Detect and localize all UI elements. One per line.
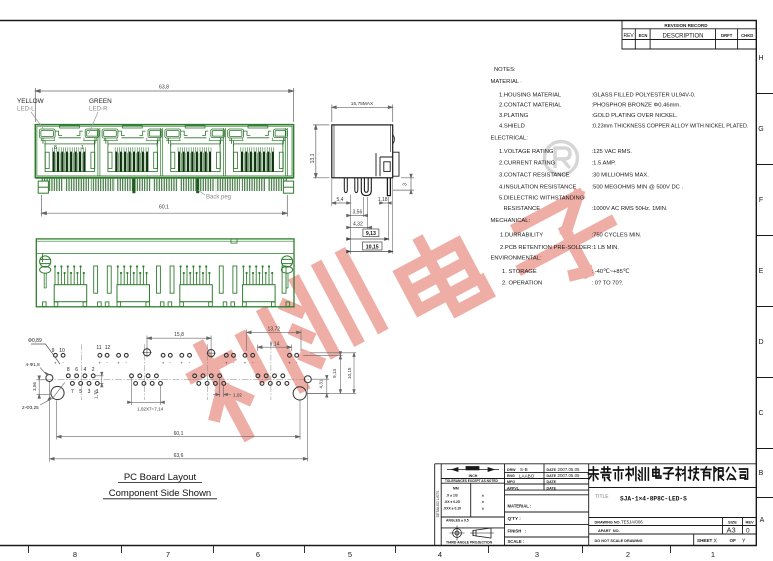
svg-text:REV: REV <box>746 519 755 524</box>
svg-text::500 MEGOHMS MIN @ 500V DC .: :500 MEGOHMS MIN @ 500V DC . <box>592 185 684 191</box>
svg-text:8: 8 <box>67 367 70 373</box>
svg-text:10: 10 <box>59 348 65 354</box>
svg-text:C: C <box>758 410 763 417</box>
svg-text:DATE: DATE <box>547 468 557 472</box>
svg-text:DETAILED LISTS: DETAILED LISTS <box>436 490 440 517</box>
svg-text:REV: REV <box>623 33 634 39</box>
svg-text::125 VAC RMS.: :125 VAC RMS. <box>592 149 633 155</box>
svg-text:G: G <box>758 126 763 133</box>
svg-text:9,14: 9,14 <box>270 342 280 348</box>
svg-text:APART NO.: APART NO. <box>598 529 620 533</box>
svg-text:OF: OF <box>730 538 737 543</box>
svg-text:PC Board Layout: PC Board Layout <box>124 472 197 483</box>
svg-text:DATE: DATE <box>547 480 557 484</box>
svg-text:1,78: 1,78 <box>94 390 99 399</box>
svg-text:5: 5 <box>348 550 352 559</box>
svg-text:Φ0,89: Φ0,89 <box>28 338 42 344</box>
svg-text:4.INSULATION RESISTANCE: 4.INSULATION RESISTANCE <box>499 185 577 191</box>
svg-text:9,13: 9,13 <box>366 231 376 237</box>
svg-text:63,6: 63,6 <box>174 453 184 459</box>
svg-text:63,8: 63,8 <box>159 85 169 91</box>
svg-text:RESISTANCE: RESISTANCE <box>504 206 541 212</box>
svg-text:1: 1 <box>711 550 715 559</box>
svg-text:8: 8 <box>54 145 57 151</box>
svg-text:1,18: 1,18 <box>378 197 388 203</box>
svg-text:F: F <box>759 197 763 204</box>
svg-text:1.HOUSING MATERIAL: 1.HOUSING MATERIAL <box>499 93 562 99</box>
svg-text:0: 0 <box>746 528 750 535</box>
svg-text:E: E <box>759 268 764 275</box>
svg-text:±: ± <box>482 494 484 498</box>
svg-text:3.CONTACT RESISTANCE: 3.CONTACT RESISTANCE <box>499 173 570 179</box>
svg-text:DRAWING NO.: DRAWING NO. <box>595 520 621 524</box>
svg-text:15,8: 15,8 <box>174 332 184 338</box>
svg-text:A: A <box>760 517 765 524</box>
svg-text:13,1: 13,1 <box>310 153 316 163</box>
svg-text:TOLERANCES EXCEPT AS NOTED: TOLERANCES EXCEPT AS NOTED <box>445 479 498 483</box>
svg-text:1.DURRABILITY: 1.DURRABILITY <box>500 233 543 239</box>
svg-text:MFG: MFG <box>507 480 515 484</box>
svg-text:CHKD: CHKD <box>741 33 753 38</box>
svg-text:4,32: 4,32 <box>353 221 363 227</box>
svg-text:1.VOLTAGE RATING: 1.VOLTAGE RATING <box>499 149 554 155</box>
svg-text::PHOSPHOR BRONZE Φ0.46mm.: :PHOSPHOR BRONZE Φ0.46mm. <box>592 103 682 109</box>
svg-text:ANGLES ± 0.5: ANGLES ± 0.5 <box>446 519 469 523</box>
svg-text:4,31: 4,31 <box>318 379 323 388</box>
svg-text:6: 6 <box>256 550 260 559</box>
svg-text:2.PCB RETENTION PRE-SOLDER: 2.PCB RETENTION PRE-SOLDER <box>500 245 591 251</box>
svg-text:DATE: DATE <box>547 486 557 490</box>
svg-text:5: 5 <box>79 389 82 395</box>
svg-text:12: 12 <box>105 345 111 351</box>
svg-text:8: 8 <box>73 550 77 559</box>
svg-text:B: B <box>759 470 764 477</box>
svg-text:60,1: 60,1 <box>159 205 169 211</box>
svg-text:5,4: 5,4 <box>337 197 344 203</box>
svg-text:DRW: DRW <box>507 468 516 472</box>
svg-text:REVISION RECORD: REVISION RECORD <box>664 23 708 28</box>
svg-text:2.CONTACT MATERIAL: 2.CONTACT MATERIAL <box>499 103 562 109</box>
svg-text:.XXX ± 0.10: .XXX ± 0.10 <box>443 507 461 511</box>
svg-text:DRFT: DRFT <box>721 33 733 38</box>
svg-text:S-B: S-B <box>520 467 528 472</box>
svg-text:Component Side Shown: Component Side Shown <box>109 488 211 499</box>
svg-text:7: 7 <box>166 550 170 559</box>
svg-text:: 0? TO 70?.: : 0? TO 70?. <box>592 281 624 287</box>
svg-text:3,56: 3,56 <box>353 209 363 215</box>
svg-text:1. STORAGE: 1. STORAGE <box>502 269 537 275</box>
svg-text:3: 3 <box>88 389 91 395</box>
svg-text:DATE: DATE <box>547 474 557 478</box>
svg-text:TITLE: TITLE <box>595 494 609 500</box>
svg-text:Q'TY :: Q'TY : <box>508 516 522 521</box>
svg-text:11: 11 <box>96 345 101 351</box>
svg-text:3.PLATING: 3.PLATING <box>499 113 529 119</box>
svg-text:4.SHIELD: 4.SHIELD <box>499 124 525 130</box>
svg-text:16,75MAX: 16,75MAX <box>351 101 374 107</box>
svg-text:10,15: 10,15 <box>347 367 352 379</box>
svg-text:YELLOW: YELLOW <box>17 98 45 105</box>
svg-text:LED-R: LED-R <box>89 106 108 113</box>
svg-text:SIZE: SIZE <box>728 519 737 524</box>
svg-text:GREEN: GREEN <box>89 98 112 105</box>
svg-text:ENG: ENG <box>507 474 515 478</box>
svg-text:±: ± <box>482 507 484 511</box>
svg-text:3: 3 <box>535 550 539 559</box>
svg-text:THIRD ANGLE PROJECTION: THIRD ANGLE PROJECTION <box>446 541 493 545</box>
svg-text:: -40℃~+85℃: : -40℃~+85℃ <box>592 269 630 275</box>
svg-text:1,02X7=7,14: 1,02X7=7,14 <box>137 407 164 412</box>
svg-text:SCALE :: SCALE : <box>508 539 525 544</box>
svg-text:4: 4 <box>438 550 442 559</box>
svg-text:ELECTRICAL:: ELECTRICAL: <box>491 136 529 142</box>
svg-text:A3: A3 <box>727 526 736 535</box>
svg-text:10,15: 10,15 <box>366 244 379 250</box>
svg-text::0.23mm THICKNESS COPPER ALLOY: :0.23mm THICKNESS COPPER ALLOY WITH NICK… <box>592 124 749 130</box>
svg-text:60,1: 60,1 <box>174 431 184 437</box>
svg-text:NOTES:: NOTES: <box>494 67 516 73</box>
svg-text:Back peg: Back peg <box>206 195 231 201</box>
svg-text:2007.05.05: 2007.05.05 <box>558 467 581 472</box>
svg-text:H: H <box>758 55 763 62</box>
svg-text:2.CURRENT RATING: 2.CURRENT RATING <box>499 161 556 167</box>
svg-text:DESCRIPTION: DESCRIPTION <box>662 34 703 40</box>
svg-text:5.DIELECTRIC WITHSTANDING: 5.DIELECTRIC WITHSTANDING <box>499 196 585 202</box>
svg-text:2. OPERATION: 2. OPERATION <box>502 281 542 287</box>
svg-text:4-Φ1,8: 4-Φ1,8 <box>26 362 41 367</box>
svg-text:DO NOT SCALE DRAWING: DO NOT SCALE DRAWING <box>595 539 643 543</box>
svg-text:Y: Y <box>742 539 746 545</box>
svg-text:3: 3 <box>403 183 409 186</box>
svg-text:APPVL: APPVL <box>507 486 520 490</box>
svg-text:INCH: INCH <box>469 474 478 478</box>
svg-text:D: D <box>758 339 763 346</box>
svg-text:ENVIRONMENTAL:: ENVIRONMENTAL: <box>491 256 542 262</box>
svg-text:MECHANICAL:: MECHANICAL: <box>491 218 531 224</box>
svg-text::GOLD PLATING OVER NICKEL.: :GOLD PLATING OVER NICKEL. <box>592 113 679 119</box>
svg-text:MATERIAL :: MATERIAL : <box>508 504 532 509</box>
svg-text:X: X <box>714 539 718 545</box>
svg-text:MATERIAL :: MATERIAL : <box>491 79 522 85</box>
svg-text:2: 2 <box>626 550 630 559</box>
svg-text:4: 4 <box>84 367 87 373</box>
svg-text:3,56: 3,56 <box>32 382 37 391</box>
svg-text:6: 6 <box>75 367 78 373</box>
svg-text:.X ± 1/3: .X ± 1/3 <box>446 494 458 498</box>
svg-text:.XX ± 0.25: .XX ± 0.25 <box>444 500 460 504</box>
svg-text:9,13: 9,13 <box>332 369 337 378</box>
svg-text:FINISH :: FINISH : <box>508 529 527 534</box>
svg-text:SHEET: SHEET <box>697 538 713 543</box>
svg-text::1 LB MIN.: :1 LB MIN. <box>592 245 620 251</box>
svg-text:2007.05.05: 2007.05.05 <box>558 473 581 478</box>
svg-text:±: ± <box>482 500 484 504</box>
svg-text::30 MILLIOHMS MAX.: :30 MILLIOHMS MAX. <box>592 173 650 179</box>
svg-text::GLASS FILLED POLYESTER UL94V-: :GLASS FILLED POLYESTER UL94V-0. <box>592 93 696 99</box>
svg-text:LED-L: LED-L <box>17 106 35 113</box>
svg-text::750 CYCLES MIN.: :750 CYCLES MIN. <box>592 233 642 239</box>
svg-text:7: 7 <box>71 389 74 395</box>
svg-text::1000V AC RMS 50Hz. 1MIN.: :1000V AC RMS 50Hz. 1MIN. <box>592 206 668 212</box>
svg-text:TE5JA/006: TE5JA/006 <box>621 520 643 525</box>
svg-text:SJA-1×4-8P8C-LED-S: SJA-1×4-8P8C-LED-S <box>620 496 687 503</box>
svg-text:ECN: ECN <box>639 33 648 38</box>
svg-text:1: 1 <box>81 145 84 151</box>
svg-text:LAABO: LAABO <box>519 473 535 478</box>
svg-text:2: 2 <box>92 367 95 373</box>
svg-text:MM: MM <box>453 487 459 491</box>
svg-text:13,72: 13,72 <box>268 327 281 333</box>
svg-text:2-Φ3,25: 2-Φ3,25 <box>22 405 39 410</box>
svg-text:1,02: 1,02 <box>233 393 242 398</box>
svg-text::1.5 AMP.: :1.5 AMP. <box>592 161 617 167</box>
